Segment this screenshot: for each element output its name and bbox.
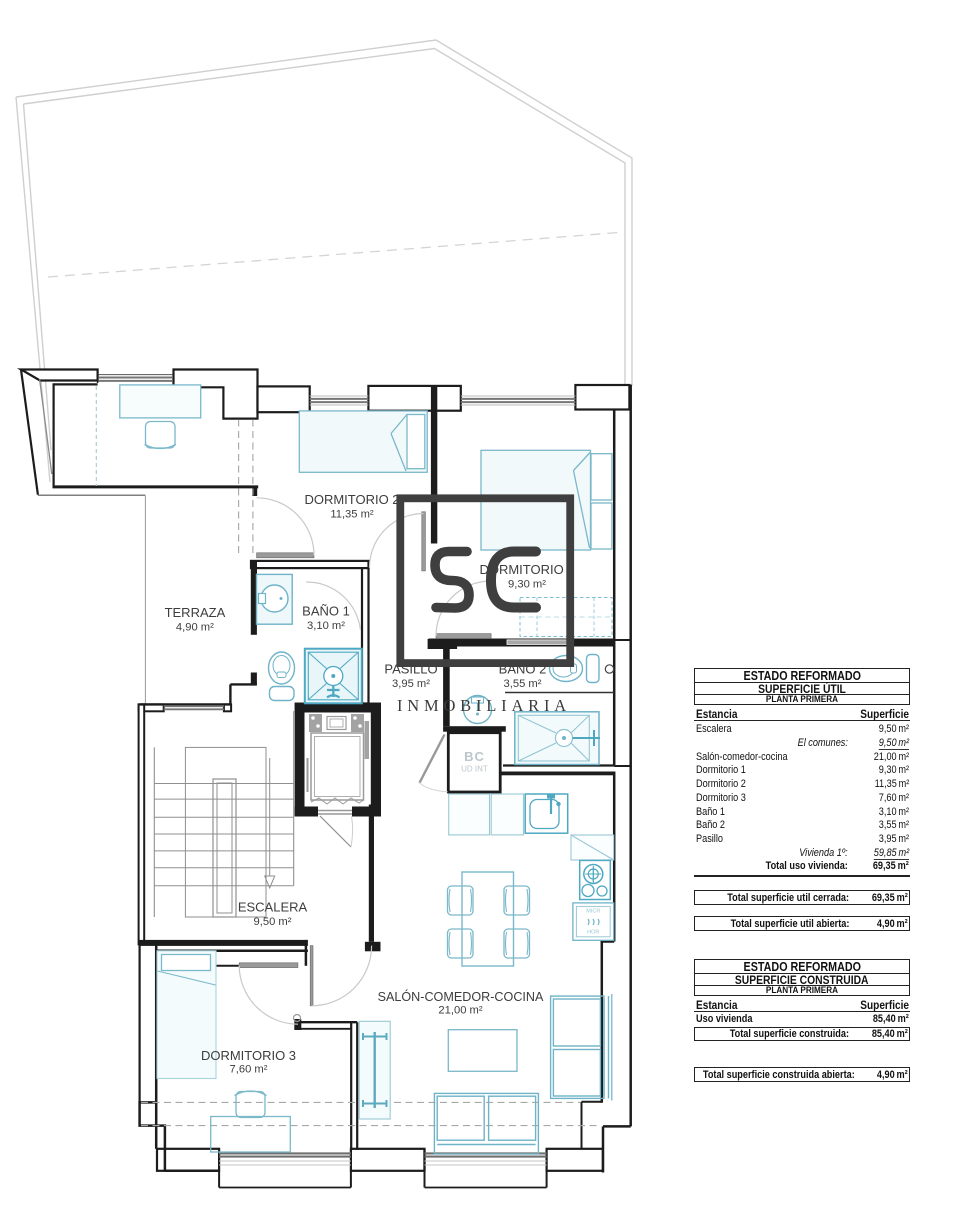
svg-text:7,60 m²: 7,60 m² xyxy=(230,1064,268,1076)
svg-text:SALÓN-COMEDOR-COCINA: SALÓN-COMEDOR-COCINA xyxy=(378,989,544,1004)
svg-text:3,55 m²: 3,55 m² xyxy=(504,678,542,690)
svg-text:INMOBILIARIA: INMOBILIARIA xyxy=(397,696,571,715)
svg-text:ESCALERA: ESCALERA xyxy=(238,900,308,915)
svg-text:DORMITORIO 3: DORMITORIO 3 xyxy=(201,1048,296,1063)
svg-text:BAÑO 1: BAÑO 1 xyxy=(302,604,350,619)
svg-text:BC: BC xyxy=(464,749,485,764)
svg-text:3,10 m²: 3,10 m² xyxy=(307,620,345,632)
svg-text:3,95 m²: 3,95 m² xyxy=(392,678,430,690)
svg-text:MICR: MICR xyxy=(586,909,600,915)
svg-text:9,50 m²: 9,50 m² xyxy=(254,916,292,928)
svg-text:DORMITORIO 2: DORMITORIO 2 xyxy=(304,492,399,507)
svg-text:11,35 m²: 11,35 m² xyxy=(330,509,374,521)
svg-text:UD INT: UD INT xyxy=(461,765,488,774)
svg-text:TERRAZA: TERRAZA xyxy=(165,605,226,620)
svg-text:9,30 m²: 9,30 m² xyxy=(508,579,546,591)
svg-text:4,90 m²: 4,90 m² xyxy=(176,622,214,634)
svg-text:21,00 m²: 21,00 m² xyxy=(438,1005,482,1017)
svg-text:HOR: HOR xyxy=(587,930,599,936)
